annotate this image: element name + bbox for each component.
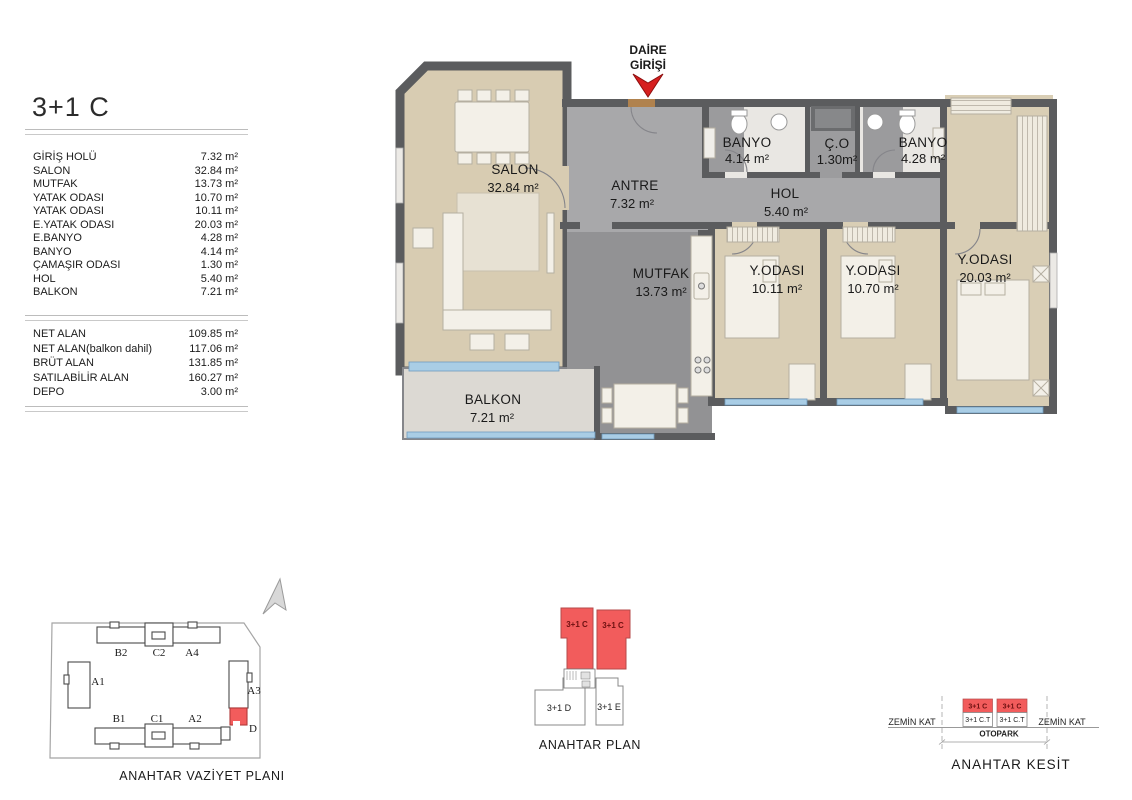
table-row: MUTFAK13.73 m² bbox=[33, 178, 238, 192]
balkon-label: BALKON bbox=[465, 392, 522, 407]
summary-label: BRÜT ALAN bbox=[33, 356, 94, 371]
block-label-a4: A4 bbox=[185, 647, 199, 659]
summary-label: NET ALAN bbox=[33, 327, 86, 342]
room-area: 1.30 m² bbox=[201, 259, 238, 273]
room-area: 7.21 m² bbox=[201, 286, 238, 300]
banyo2-label: BANYO bbox=[899, 135, 948, 150]
mutfak-area: 13.73 m² bbox=[635, 284, 687, 299]
section-label-bottom-right: 3+1 C.T bbox=[999, 717, 1025, 724]
block-label-a2: A2 bbox=[188, 713, 201, 725]
block-label-c1: C1 bbox=[151, 713, 164, 725]
key-plan: 3+1 C 3+1 C 3+1 D 3+1 E ANAHTAR PLAN bbox=[525, 595, 675, 760]
toilet-icon bbox=[731, 114, 747, 134]
room-area: 10.11 m² bbox=[195, 205, 238, 219]
room-area: 13.73 m² bbox=[195, 178, 238, 192]
table-row: SALON32.84 m² bbox=[33, 165, 238, 179]
room-label: HOL bbox=[33, 273, 56, 287]
sink-icon bbox=[867, 114, 883, 130]
dining-table bbox=[455, 102, 529, 152]
wardrobe bbox=[1017, 116, 1047, 231]
summary-value: 117.06 m² bbox=[189, 342, 238, 357]
key-plan-tower-right bbox=[597, 610, 630, 669]
camasir-label: Ç.O bbox=[825, 136, 850, 151]
block-label-a1: A1 bbox=[91, 676, 104, 688]
room-label: E.YATAK ODASI bbox=[33, 219, 114, 233]
salon-label: SALON bbox=[491, 162, 538, 177]
summary-label: NET ALAN(balkon dahil) bbox=[33, 342, 152, 357]
block-label-c2: C2 bbox=[153, 647, 166, 659]
table-row: E.BANYO4.28 m² bbox=[33, 232, 238, 246]
section-label-top-right: 3+1 C bbox=[1003, 704, 1022, 711]
banyo1-area: 4.14 m² bbox=[725, 151, 770, 166]
table-row: BANYO4.14 m² bbox=[33, 246, 238, 260]
room-label: GİRİŞ HOLÜ bbox=[33, 151, 97, 165]
wardrobe bbox=[843, 227, 895, 242]
site-plan: B2 C2 A4 A1 A3 B1 C1 A2 D ANAHTAR VAZİYE… bbox=[40, 575, 290, 790]
room-label: SALON bbox=[33, 165, 70, 179]
toilet-icon bbox=[899, 114, 915, 134]
desk bbox=[905, 364, 931, 400]
table-row: YATAK ODASI10.11 m² bbox=[33, 205, 238, 219]
key-section: 3+1 C 3+1 C 3+1 C.T 3+1 C.T ZEMİN KAT ZE… bbox=[885, 672, 1105, 792]
north-arrow-icon bbox=[263, 579, 286, 614]
balkon-area: 7.21 m² bbox=[470, 410, 515, 425]
table-row: ÇAMAŞIR ODASI1.30 m² bbox=[33, 259, 238, 273]
desk bbox=[789, 364, 815, 400]
table-row: NET ALAN109.85 m² bbox=[33, 327, 238, 342]
mutfak-label: MUTFAK bbox=[633, 266, 690, 281]
divider bbox=[25, 406, 248, 412]
key-plan-label-left: 3+1 C bbox=[566, 620, 588, 629]
page-title: 3+1 C bbox=[32, 92, 110, 123]
table-row: NET ALAN(balkon dahil)117.06 m² bbox=[33, 342, 238, 357]
key-plan-label-d: 3+1 D bbox=[547, 703, 572, 713]
block-label-b1: B1 bbox=[113, 713, 126, 725]
key-plan-label-right: 3+1 C bbox=[602, 621, 624, 630]
section-label-bottom-left: 3+1 C.T bbox=[965, 717, 991, 724]
block-label-b2: B2 bbox=[115, 647, 128, 659]
site-plan-title: ANAHTAR VAZİYET PLANI bbox=[119, 769, 284, 783]
room-area: 4.14 m² bbox=[201, 246, 238, 260]
wardrobe bbox=[727, 227, 779, 242]
entrance-label-line2: GİRİŞİ bbox=[630, 57, 666, 72]
table-row: BALKON7.21 m² bbox=[33, 286, 238, 300]
block-label-d: D bbox=[249, 723, 257, 735]
divider bbox=[25, 315, 248, 321]
room-area: 7.32 m² bbox=[201, 151, 238, 165]
summary-value: 131.85 m² bbox=[188, 356, 238, 371]
table-row: HOL5.40 m² bbox=[33, 273, 238, 287]
yatak1-area: 10.11 m² bbox=[752, 281, 803, 296]
room-area: 32.84 m² bbox=[195, 165, 238, 179]
hol-area: 5.40 m² bbox=[764, 204, 809, 219]
room-label: BANYO bbox=[33, 246, 72, 260]
table-row: SATILABİLİR ALAN160.27 m² bbox=[33, 371, 238, 386]
summary-value: 160.27 m² bbox=[188, 371, 238, 386]
room-label: BALKON bbox=[33, 286, 78, 300]
table-row: BRÜT ALAN131.85 m² bbox=[33, 356, 238, 371]
salon-area: 32.84 m² bbox=[487, 180, 539, 195]
divider bbox=[25, 129, 248, 135]
summary-table: NET ALAN109.85 m² NET ALAN(balkon dahil)… bbox=[33, 327, 238, 400]
section-label-top-left: 3+1 C bbox=[968, 704, 987, 711]
summary-value: 3.00 m² bbox=[201, 385, 238, 400]
hol-label: HOL bbox=[771, 186, 800, 201]
entry-sill bbox=[628, 99, 655, 107]
antre-label: ANTRE bbox=[611, 178, 658, 193]
wardrobe bbox=[951, 98, 1011, 114]
tv-unit bbox=[547, 213, 554, 273]
block-label-a3: A3 bbox=[247, 685, 261, 697]
floor-plan: DAİRE GİRİŞİ bbox=[395, 28, 1067, 453]
key-plan-core bbox=[564, 669, 595, 688]
yatak2-area: 10.70 m² bbox=[847, 281, 899, 296]
summary-label: DEPO bbox=[33, 385, 64, 400]
summary-value: 109.85 m² bbox=[188, 327, 238, 342]
sink-icon bbox=[771, 114, 787, 130]
room-label: E.BANYO bbox=[33, 232, 82, 246]
room-label: MUTFAK bbox=[33, 178, 78, 192]
eyatak-area: 20.03 m² bbox=[959, 270, 1011, 285]
table-row: YATAK ODASI10.70 m² bbox=[33, 192, 238, 206]
room-area: 5.40 m² bbox=[201, 273, 238, 287]
table-row: DEPO3.00 m² bbox=[33, 385, 238, 400]
key-section-title: ANAHTAR KESİT bbox=[951, 757, 1070, 772]
antre-area: 7.32 m² bbox=[610, 196, 655, 211]
entrance-arrow-icon bbox=[633, 74, 663, 97]
room-area: 4.28 m² bbox=[201, 232, 238, 246]
key-plan-title: ANAHTAR PLAN bbox=[539, 738, 641, 752]
banyo2-tile bbox=[863, 103, 903, 178]
room-area: 20.03 m² bbox=[195, 219, 238, 233]
camasir-area: 1.30m² bbox=[817, 152, 858, 167]
banyo2-area: 4.28 m² bbox=[901, 151, 946, 166]
rooms-table: GİRİŞ HOLÜ7.32 m² SALON32.84 m² MUTFAK13… bbox=[33, 151, 238, 300]
entrance-label-line1: DAİRE bbox=[629, 42, 666, 57]
key-plan-label-e: 3+1 E bbox=[597, 702, 621, 712]
key-plan-tower-left bbox=[561, 608, 593, 669]
summary-label: SATILABİLİR ALAN bbox=[33, 371, 129, 386]
table-row: E.YATAK ODASI20.03 m² bbox=[33, 219, 238, 233]
room-area: 10.70 m² bbox=[195, 192, 238, 206]
room-label: YATAK ODASI bbox=[33, 205, 104, 219]
zemin-kat-right: ZEMİN KAT bbox=[1038, 717, 1086, 727]
sofa bbox=[443, 213, 463, 313]
yatak1-label: Y.ODASI bbox=[749, 263, 804, 278]
room-label: YATAK ODASI bbox=[33, 192, 104, 206]
table-row: GİRİŞ HOLÜ7.32 m² bbox=[33, 151, 238, 165]
floorplan-page: 3+1 C GİRİŞ HOLÜ7.32 m² SALON32.84 m² MU… bbox=[0, 0, 1132, 800]
yatak2-label: Y.ODASI bbox=[845, 263, 900, 278]
zemin-kat-left: ZEMİN KAT bbox=[888, 717, 936, 727]
otopark-label: OTOPARK bbox=[979, 730, 1018, 739]
eyatak-label: Y.ODASI bbox=[957, 252, 1012, 267]
room-label: ÇAMAŞIR ODASI bbox=[33, 259, 120, 273]
kitchen-table bbox=[614, 384, 676, 428]
banyo1-label: BANYO bbox=[723, 135, 772, 150]
